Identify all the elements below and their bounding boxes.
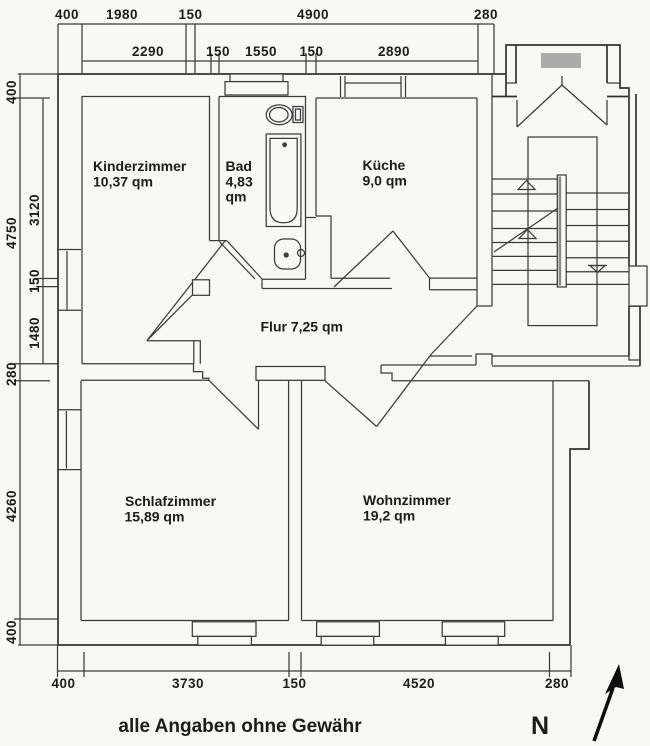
svg-text:1550: 1550 [245, 44, 277, 59]
svg-text:3730: 3730 [172, 676, 204, 691]
svg-text:150: 150 [27, 269, 42, 293]
svg-text:400: 400 [4, 80, 19, 104]
svg-text:Bad: Bad [226, 158, 252, 174]
svg-text:4260: 4260 [4, 490, 19, 522]
svg-text:10,37 qm: 10,37 qm [93, 174, 153, 190]
svg-text:150: 150 [282, 676, 306, 691]
svg-text:2890: 2890 [378, 44, 410, 59]
svg-text:280: 280 [545, 676, 569, 691]
svg-text:N: N [531, 712, 549, 740]
svg-text:280: 280 [4, 362, 19, 386]
svg-text:Küche: Küche [363, 157, 406, 173]
svg-text:1480: 1480 [27, 317, 42, 349]
svg-text:9,0 qm: 9,0 qm [363, 173, 407, 189]
svg-text:Schlafzimmer: Schlafzimmer [125, 493, 217, 509]
svg-text:4900: 4900 [297, 7, 329, 22]
svg-text:qm: qm [226, 189, 247, 205]
svg-text:4750: 4750 [4, 217, 19, 249]
svg-text:150: 150 [299, 44, 323, 59]
svg-text:1980: 1980 [106, 7, 138, 22]
svg-text:3120: 3120 [27, 194, 42, 226]
svg-text:Flur 7,25 qm: Flur 7,25 qm [261, 319, 343, 335]
svg-text:15,89 qm: 15,89 qm [125, 509, 185, 525]
svg-text:400: 400 [51, 676, 75, 691]
svg-text:19,2 qm: 19,2 qm [363, 508, 415, 524]
svg-text:400: 400 [4, 620, 19, 644]
svg-text:150: 150 [178, 7, 202, 22]
svg-text:4,83: 4,83 [226, 174, 253, 190]
svg-text:Wohnzimmer: Wohnzimmer [363, 492, 451, 508]
svg-text:4520: 4520 [403, 676, 435, 691]
svg-text:280: 280 [474, 7, 498, 22]
svg-text:400: 400 [55, 7, 79, 22]
svg-text:Kinderzimmer: Kinderzimmer [93, 158, 187, 174]
svg-text:alle Angaben ohne Gewähr: alle Angaben ohne Gewähr [118, 716, 362, 737]
svg-text:150: 150 [206, 44, 230, 59]
svg-text:2290: 2290 [132, 44, 164, 59]
